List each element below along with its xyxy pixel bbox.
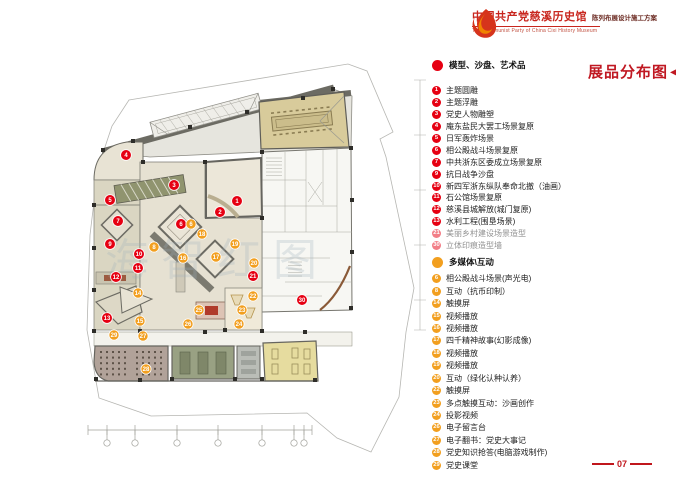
classroom xyxy=(94,346,168,381)
legend-multimedia-list: 6相公殿战斗场景(声光电)8互动（抗币印制）14触摸屏15视频播放16视频播放1… xyxy=(432,272,674,471)
plan-marker-1: 1 xyxy=(232,196,243,207)
legend-item-label: 抗日战争沙盘 xyxy=(446,169,494,180)
legend-item: 1主题圆雕 xyxy=(432,85,674,97)
legend-item-number: 14 xyxy=(432,299,441,308)
plan-marker-24: 24 xyxy=(234,319,244,329)
legend-item-label: 触摸屏 xyxy=(446,385,470,396)
legend-item: 18视频播放 xyxy=(432,347,674,359)
legend-item-number: 6 xyxy=(432,146,441,155)
legend-item-label: 党史知识抢答(电脑游戏制作) xyxy=(446,447,547,458)
legend-item: 4庵东盐民大罢工场景复原 xyxy=(432,121,674,133)
legend-item-number: 2 xyxy=(432,98,441,107)
museum-logo-icon xyxy=(472,8,498,40)
legend-models-list: 1主题圆雕2主题浮雕3党史人物雕塑4庵东盐民大罢工场景复原5日军轰炸场景6相公殿… xyxy=(432,85,674,251)
legend-item: 15视频播放 xyxy=(432,310,674,322)
legend-item: 24投影视频 xyxy=(432,409,674,421)
legend-item: 6相公殿战斗场景复原 xyxy=(432,144,674,156)
legend-section-title: 模型、沙盘、艺术品 xyxy=(449,59,526,71)
office-1 xyxy=(237,346,260,379)
legend-item-label: 四千精神故事(幻影成像) xyxy=(446,335,531,346)
legend-item: 21美丽乡村建设场景造型 xyxy=(432,228,674,240)
plan-marker-23: 23 xyxy=(237,305,247,315)
legend-item-number: 1 xyxy=(432,86,441,95)
svg-text:11: 11 xyxy=(135,266,142,272)
plan-marker-15: 15 xyxy=(135,316,145,326)
svg-text:24: 24 xyxy=(236,322,243,328)
legend-item-number: 21 xyxy=(432,229,441,238)
svg-text:16: 16 xyxy=(180,256,187,262)
plan-marker-11: 11 xyxy=(133,263,144,274)
legend-item: 14触摸屏 xyxy=(432,297,674,309)
legend-item: 2主题浮雕 xyxy=(432,97,674,109)
legend-item: 8互动（抗币印制） xyxy=(432,285,674,297)
legend-item: 6相公殿战斗场景(声光电) xyxy=(432,272,674,284)
svg-text:26: 26 xyxy=(185,322,192,328)
legend-item-label: 电子翻书：党史大事记 xyxy=(446,435,526,446)
legend-item-label: 互动（绿化认种认养） xyxy=(446,373,526,384)
plan-marker-30: 30 xyxy=(297,295,308,306)
page-number-rule xyxy=(592,463,614,465)
legend-item-label: 投影视频 xyxy=(446,410,478,421)
legend-item-label: 主题圆雕 xyxy=(446,85,478,96)
media-room xyxy=(172,346,234,379)
legend-item-number: 24 xyxy=(432,411,441,420)
plan-marker-29: 29 xyxy=(109,330,119,340)
plan-marker-13: 13 xyxy=(102,313,113,324)
legend-item-label: 相公殿战斗场景复原 xyxy=(446,145,518,156)
legend-item-label: 视频播放 xyxy=(446,348,478,359)
svg-text:27: 27 xyxy=(140,334,147,340)
svg-text:15: 15 xyxy=(137,319,144,325)
meeting-room xyxy=(259,92,349,149)
legend-item-label: 视频播放 xyxy=(446,360,478,371)
svg-text:10: 10 xyxy=(136,252,143,258)
svg-text:30: 30 xyxy=(299,298,306,304)
legend-item-label: 立体印痕造型墙 xyxy=(446,240,502,251)
legend-item-number: 28 xyxy=(432,448,441,457)
legend-item-label: 视频播放 xyxy=(446,311,478,322)
bottom-dimension-line xyxy=(88,425,312,446)
legend-item-number: 10 xyxy=(432,182,441,191)
legend-item-number: 4 xyxy=(432,122,441,131)
plan-marker-8: 8 xyxy=(149,242,159,252)
legend-item-number: 18 xyxy=(432,349,441,358)
legend-item: 26电子留言台 xyxy=(432,422,674,434)
legend-item-label: 多点触摸互动：沙画创作 xyxy=(446,398,534,409)
plan-marker-9: 9 xyxy=(105,239,116,250)
plan-marker-20: 20 xyxy=(249,258,259,268)
legend-item: 22触摸屏 xyxy=(432,384,674,396)
legend-item-number: 5 xyxy=(432,134,441,143)
svg-text:18: 18 xyxy=(199,232,206,238)
plan-marker-22: 22 xyxy=(248,291,258,301)
legend-item-label: 党史课堂 xyxy=(446,460,478,471)
legend-item-label: 触摸屏 xyxy=(446,298,470,309)
legend-item-label: 庵东盐民大罢工场景复原 xyxy=(446,121,534,132)
plan-marker-6: 6 xyxy=(186,219,196,229)
legend-item: 30立体印痕造型墙 xyxy=(432,240,674,252)
legend-item-label: 相公殿战斗场景(声光电) xyxy=(446,273,531,284)
legend-section-multimedia: 多媒体\互动 xyxy=(432,255,674,269)
legend: 模型、沙盘、艺术品 1主题圆雕2主题浮雕3党史人物雕塑4庵东盐民大罢工场景复原5… xyxy=(432,58,674,471)
svg-text:20: 20 xyxy=(251,261,258,267)
svg-text:29: 29 xyxy=(111,333,118,339)
legend-item-number: 30 xyxy=(432,241,441,250)
service-block xyxy=(262,148,352,312)
legend-item: 13水利工程(围垦场景) xyxy=(432,216,674,228)
legend-item-number: 17 xyxy=(432,336,441,345)
legend-section-title: 多媒体\互动 xyxy=(449,256,494,268)
museum-title-en: The Communist Party of China Cixi Histor… xyxy=(472,28,657,34)
svg-text:13: 13 xyxy=(104,316,111,322)
plan-marker-17: 17 xyxy=(211,252,221,262)
legend-item-number: 8 xyxy=(432,287,441,296)
plan-marker-5: 5 xyxy=(105,195,116,206)
legend-item-label: 互动（抗币印制） xyxy=(446,286,510,297)
svg-text:14: 14 xyxy=(135,291,142,297)
plan-marker-3: 3 xyxy=(169,180,180,191)
legend-item: 27电子翻书：党史大事记 xyxy=(432,434,674,446)
svg-text:21: 21 xyxy=(250,274,257,280)
plan-marker-14: 14 xyxy=(133,288,143,298)
legend-item-number: 22 xyxy=(432,386,441,395)
plan-marker-10: 10 xyxy=(134,249,145,260)
legend-item-label: 石公馆场景复原 xyxy=(446,192,502,203)
legend-item-number: 23 xyxy=(432,399,441,408)
svg-text:22: 22 xyxy=(250,294,257,300)
legend-item-number: 3 xyxy=(432,110,441,119)
theme-hall xyxy=(206,158,262,218)
legend-item: 17四千精神故事(幻影成像) xyxy=(432,335,674,347)
legend-item-number: 16 xyxy=(432,324,441,333)
legend-item-label: 视频播放 xyxy=(446,323,478,334)
legend-item: 23多点触摸互动：沙画创作 xyxy=(432,397,674,409)
legend-item: 7中共浙东区委成立场景复原 xyxy=(432,156,674,168)
legend-item-number: 19 xyxy=(432,361,441,370)
legend-item-number: 9 xyxy=(432,170,441,179)
plan-marker-25: 25 xyxy=(194,305,204,315)
legend-item: 10新四军浙东纵队奉命北撤（油画） xyxy=(432,180,674,192)
legend-item-number: 7 xyxy=(432,158,441,167)
legend-item-label: 电子留言台 xyxy=(446,422,486,433)
legend-item: 12慈溪县城解放(城门复原) xyxy=(432,204,674,216)
legend-item-label: 慈溪县城解放(城门复原) xyxy=(446,204,531,215)
plan-marker-6: 6 xyxy=(176,219,187,230)
legend-item: 5日军轰炸场景 xyxy=(432,133,674,145)
office-2 xyxy=(263,341,318,381)
plan-marker-12: 12 xyxy=(111,272,122,283)
right-dimension-line xyxy=(414,80,426,330)
lobby xyxy=(94,142,143,180)
legend-item-label: 日军轰炸场景 xyxy=(446,133,494,144)
legend-item: 20互动（绿化认种认养） xyxy=(432,372,674,384)
legend-item-number: 27 xyxy=(432,436,441,445)
plan-marker-21: 21 xyxy=(248,271,259,282)
page-number-text: 07 xyxy=(617,459,627,469)
legend-item-label: 新四军浙东纵队奉命北撤（油画） xyxy=(446,181,566,192)
legend-item-label: 水利工程(围垦场景) xyxy=(446,216,515,227)
plan-marker-2: 2 xyxy=(215,207,226,218)
plan-marker-19: 19 xyxy=(230,239,240,249)
plan-marker-18: 18 xyxy=(197,229,207,239)
legend-item-number: 13 xyxy=(432,217,441,226)
plan-marker-28: 28 xyxy=(141,364,151,374)
multimedia-dot-icon xyxy=(432,257,443,268)
legend-item-number: 29 xyxy=(432,461,441,470)
legend-item: 19视频播放 xyxy=(432,360,674,372)
legend-item: 9抗日战争沙盘 xyxy=(432,168,674,180)
svg-text:19: 19 xyxy=(232,242,239,248)
plan-marker-26: 26 xyxy=(183,319,193,329)
legend-item-label: 党史人物雕塑 xyxy=(446,109,494,120)
legend-item: 28党史知识抢答(电脑游戏制作) xyxy=(432,447,674,459)
legend-item-number: 15 xyxy=(432,312,441,321)
plan-marker-4: 4 xyxy=(121,150,132,161)
legend-item-label: 主题浮雕 xyxy=(446,97,478,108)
legend-item-number: 26 xyxy=(432,423,441,432)
design-sheet: 海智红图 12345679101112132130681415161718192… xyxy=(0,0,676,477)
legend-section-models: 模型、沙盘、艺术品 xyxy=(432,58,674,72)
svg-text:28: 28 xyxy=(143,367,150,373)
legend-item-label: 美丽乡村建设场景造型 xyxy=(446,228,526,239)
legend-item-number: 11 xyxy=(432,193,441,202)
svg-text:23: 23 xyxy=(239,308,246,314)
header: 中国共产党慈溪历史馆 陈列布展设计施工方案 The Communist Part… xyxy=(472,8,657,34)
legend-item-number: 20 xyxy=(432,374,441,383)
plan-marker-16: 16 xyxy=(178,253,188,263)
doc-subtitle: 陈列布展设计施工方案 xyxy=(592,12,657,22)
plan-marker-27: 27 xyxy=(138,331,148,341)
page-number-rule xyxy=(630,463,652,465)
legend-item-number: 12 xyxy=(432,205,441,214)
legend-item-number: 6 xyxy=(432,274,441,283)
plan-marker-7: 7 xyxy=(113,216,124,227)
legend-item: 11石公馆场景复原 xyxy=(432,192,674,204)
models-dot-icon xyxy=(432,60,443,71)
legend-item: 16视频播放 xyxy=(432,322,674,334)
legend-item-label: 中共浙东区委成立场景复原 xyxy=(446,157,542,168)
page-number: 07 xyxy=(592,459,652,469)
svg-text:17: 17 xyxy=(213,255,220,261)
legend-item: 3党史人物雕塑 xyxy=(432,109,674,121)
svg-text:25: 25 xyxy=(196,308,203,314)
svg-text:12: 12 xyxy=(113,275,120,281)
